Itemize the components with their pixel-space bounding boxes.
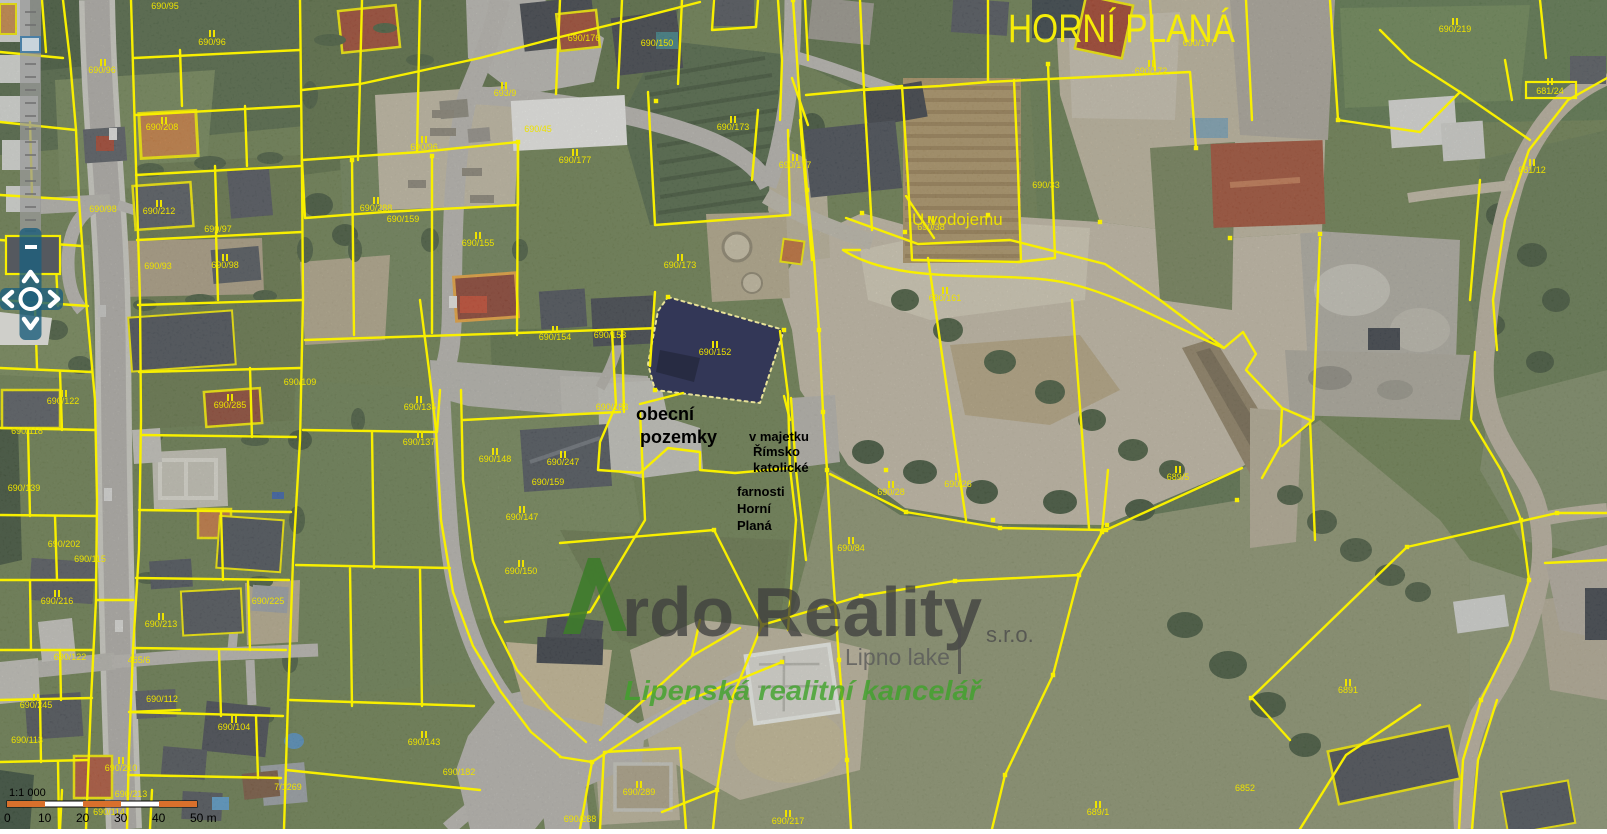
svg-text:6891: 6891 [1338,685,1358,695]
svg-text:1:1 000: 1:1 000 [9,787,46,799]
svg-text:690/98: 690/98 [211,260,239,270]
svg-text:690/139: 690/139 [8,483,41,493]
svg-text:7/1269: 7/1269 [274,782,302,792]
svg-text:690/147: 690/147 [506,512,539,522]
svg-text:30: 30 [114,811,128,825]
svg-text:690/150: 690/150 [505,566,538,576]
svg-text:690/153: 690/153 [594,330,627,340]
svg-text:690/93: 690/93 [144,261,172,271]
svg-text:20: 20 [76,811,90,825]
svg-text:690/173: 690/173 [664,260,697,270]
svg-text:690/96: 690/96 [198,37,226,47]
svg-text:690/183: 690/183 [596,402,629,412]
svg-text:690/288: 690/288 [564,814,597,824]
svg-text:rdo Reality: rdo Reality [622,573,982,651]
svg-text:690/148: 690/148 [479,454,512,464]
svg-text:689/1: 689/1 [1087,807,1110,817]
svg-text:690/247: 690/247 [547,457,580,467]
svg-text:693/9: 693/9 [494,88,517,98]
svg-text:690/150: 690/150 [641,38,674,48]
svg-text:40: 40 [152,811,166,825]
svg-text:690/212: 690/212 [143,206,176,216]
svg-text:690/285: 690/285 [214,400,247,410]
svg-text:690/135: 690/135 [404,402,437,412]
svg-text:690/96: 690/96 [88,65,116,75]
svg-text:690/155: 690/155 [462,238,495,248]
svg-text:690/182: 690/182 [443,767,476,777]
svg-text:farnosti: farnosti [737,484,785,499]
svg-text:10: 10 [38,811,52,825]
svg-text:690/225: 690/225 [252,596,285,606]
svg-text:690/245: 690/245 [20,700,53,710]
svg-text:Lipenská realitní kancelář: Lipenská realitní kancelář [624,675,983,706]
svg-text:690/104: 690/104 [218,722,251,732]
svg-text:690/28: 690/28 [877,487,905,497]
svg-text:690/152: 690/152 [699,347,732,357]
svg-text:690/289: 690/289 [623,787,656,797]
svg-text:pozemky: pozemky [640,427,717,447]
svg-text:690/161: 690/161 [929,293,962,303]
svg-text:690/84: 690/84 [837,543,865,553]
svg-text:690/217: 690/217 [772,816,805,826]
svg-text:690/118: 690/118 [11,426,43,436]
svg-text:obecní: obecní [636,404,695,424]
svg-text:U vodojemu: U vodojemu [912,210,1003,229]
svg-text:Římsko: Římsko [753,444,800,459]
svg-text:50 m: 50 m [190,811,217,825]
svg-text:690/113: 690/113 [11,735,43,745]
svg-text:690/173: 690/173 [717,122,750,132]
svg-text:690/96: 690/96 [410,142,438,152]
svg-text:690/172: 690/172 [1135,66,1168,76]
svg-text:681/24: 681/24 [1536,86,1564,96]
svg-text:690/97: 690/97 [204,224,232,234]
svg-text:Horní: Horní [737,501,771,516]
svg-text:689/5: 689/5 [1167,472,1190,482]
svg-text:690/288: 690/288 [360,203,393,213]
svg-text:690/159: 690/159 [387,214,420,224]
svg-text:690/109: 690/109 [284,377,317,387]
svg-text:690/33: 690/33 [1032,180,1060,190]
svg-text:katolické: katolické [753,460,809,475]
svg-text:s.r.o.: s.r.o. [986,622,1034,647]
svg-text:690/177: 690/177 [779,160,812,170]
svg-text:690/216: 690/216 [41,596,74,606]
svg-text:690/210: 690/210 [105,763,138,773]
svg-text:690/213: 690/213 [115,789,148,799]
svg-text:690/159: 690/159 [532,477,565,487]
svg-text:690/213: 690/213 [145,619,178,629]
svg-text:690/202: 690/202 [48,539,81,549]
svg-text:Lipno lake: Lipno lake [845,644,950,670]
svg-text:690/98: 690/98 [89,204,117,214]
svg-text:0: 0 [4,811,11,825]
svg-text:690/176: 690/176 [568,33,601,43]
svg-text:v majetku: v majetku [749,429,809,444]
svg-text:690/137: 690/137 [403,437,436,447]
svg-text:690/122: 690/122 [54,652,87,662]
svg-text:681/12: 681/12 [1518,165,1546,175]
svg-text:690/115: 690/115 [74,554,106,564]
svg-text:690/177: 690/177 [559,155,592,165]
svg-text:HORNÍ PLANÁ: HORNÍ PLANÁ [1008,6,1235,51]
svg-text:Planá: Planá [737,518,772,533]
svg-text:690/26: 690/26 [944,479,972,489]
svg-text:690/143: 690/143 [408,737,441,747]
svg-text:690/45: 690/45 [524,124,552,134]
svg-text:690/154: 690/154 [539,332,572,342]
svg-text:465/6: 465/6 [128,655,151,665]
svg-text:690/219: 690/219 [1439,24,1472,34]
svg-text:6852: 6852 [1235,783,1255,793]
svg-text:690/122: 690/122 [47,396,80,406]
svg-text:690/112: 690/112 [146,694,178,704]
svg-text:690/95: 690/95 [151,1,179,11]
